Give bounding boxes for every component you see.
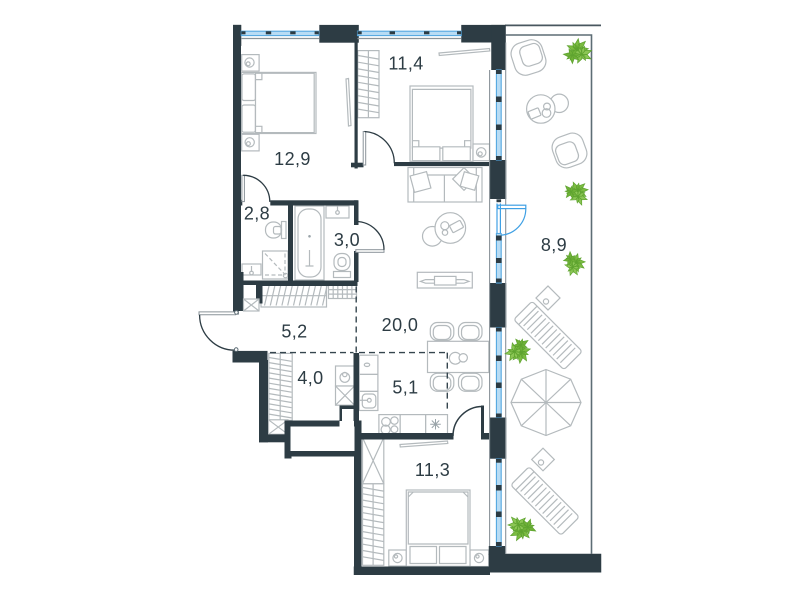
- svg-text:11,3: 11,3: [415, 460, 450, 480]
- svg-text:5,1: 5,1: [392, 378, 418, 398]
- svg-text:20,0: 20,0: [382, 315, 419, 335]
- svg-text:2,8: 2,8: [244, 204, 270, 224]
- svg-text:3,0: 3,0: [334, 230, 360, 250]
- svg-text:11,4: 11,4: [388, 54, 423, 74]
- svg-text:12,9: 12,9: [274, 149, 311, 169]
- svg-text:4,0: 4,0: [297, 368, 323, 388]
- svg-text:8,9: 8,9: [541, 235, 567, 255]
- svg-text:5,2: 5,2: [281, 322, 307, 342]
